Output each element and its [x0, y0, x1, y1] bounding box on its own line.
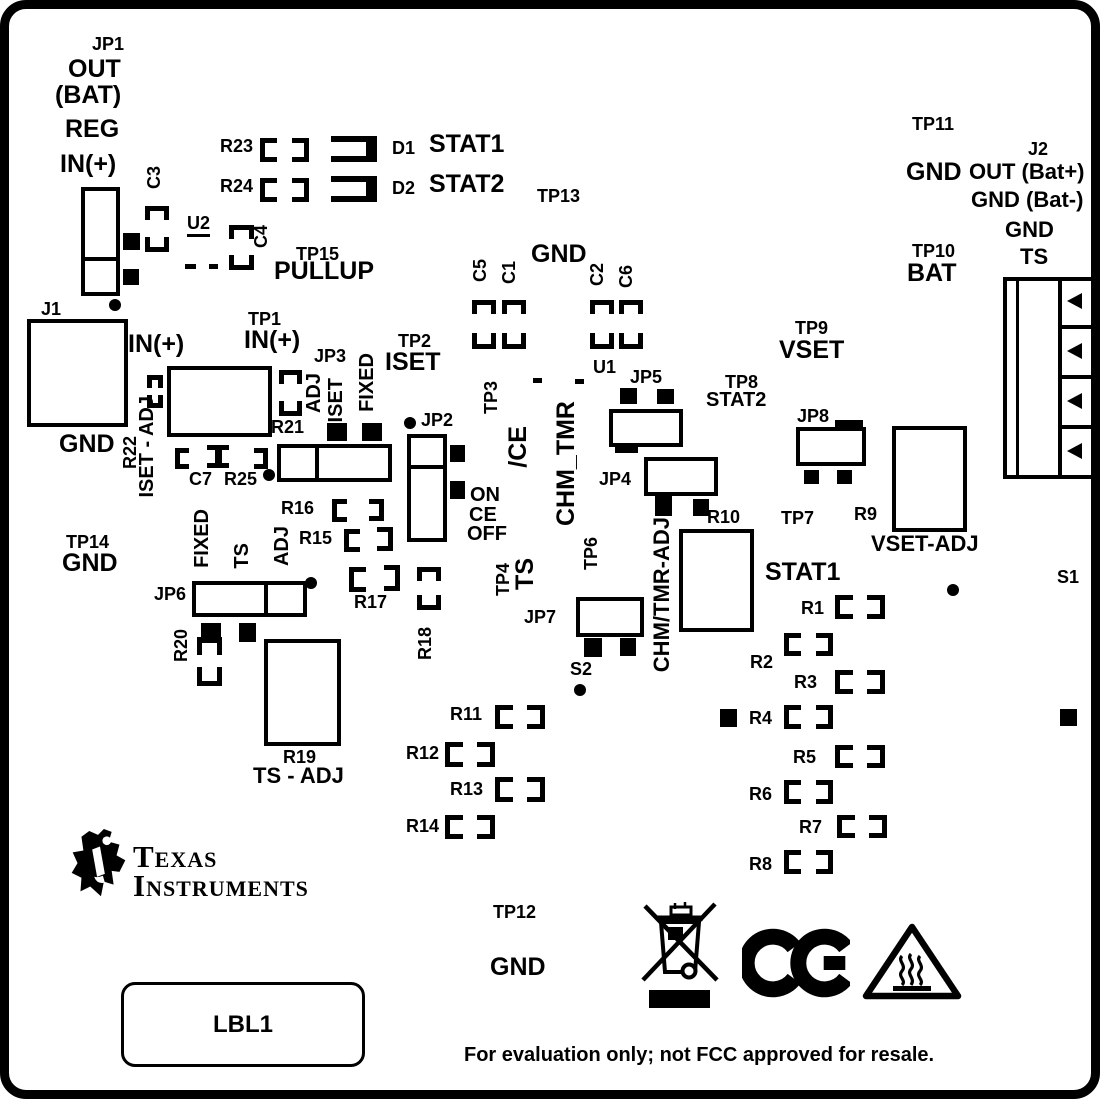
- r2-pad: [816, 633, 833, 656]
- jp7-pad: [584, 638, 602, 657]
- ref-jp8: JP8: [797, 407, 829, 425]
- d2-stat2-label: STAT2: [429, 172, 504, 197]
- r11-pad: [495, 705, 513, 729]
- jp3-fixed-label: FIXED: [357, 353, 377, 412]
- tp2-iset-label: ISET: [385, 350, 441, 375]
- r5-pad: [867, 745, 885, 768]
- ref-tp10: TP10: [912, 242, 955, 260]
- r9-potentiometer: [892, 426, 967, 532]
- ref-tp12: TP12: [493, 903, 536, 921]
- r6-pad: [816, 780, 833, 804]
- tp13-gnd-label: GND: [531, 242, 587, 267]
- ref-tp7: TP7: [781, 509, 814, 527]
- r20-pad: [197, 667, 222, 686]
- jp8-pad: [804, 470, 819, 484]
- r25-dot: [263, 469, 275, 481]
- tp9-vset-label: VSET: [779, 338, 844, 363]
- ref-r20: R20: [172, 629, 190, 662]
- weee-crossed-bin-icon: [637, 900, 723, 986]
- ref-r11: R11: [450, 705, 482, 723]
- hot-surface-warning-icon: [860, 920, 964, 1002]
- r3-pad: [867, 670, 885, 694]
- tp15-pullup-label: PULLUP: [274, 259, 374, 284]
- jp5-pad: [620, 388, 637, 404]
- stat1-label: STAT1: [765, 560, 840, 585]
- jp2-on-label: ON: [470, 485, 500, 505]
- jp1-pad: [123, 269, 139, 285]
- c7-pad: [254, 448, 268, 469]
- c1-pad: [502, 333, 526, 349]
- ref-r10: R10: [707, 508, 740, 526]
- ref-r5: R5: [793, 748, 816, 766]
- c6-pad: [619, 333, 643, 349]
- ref-r7: R7: [799, 818, 822, 836]
- r15-pad: [377, 527, 393, 551]
- chm-tmr-adj-label: CHM/TMR-ADJ: [651, 517, 673, 672]
- ref-r24: R24: [220, 177, 253, 195]
- ref-r14: R14: [406, 817, 439, 835]
- ref-c7: C7: [189, 470, 212, 488]
- ref-c2: C2: [588, 263, 606, 286]
- tp11-gnd-label: GND: [906, 160, 962, 185]
- j1-connector: [27, 319, 128, 427]
- ref-r18: R18: [416, 627, 434, 660]
- jp8-pad: [837, 470, 852, 484]
- c7-pad: [175, 448, 189, 469]
- jp6-divider: [264, 585, 268, 613]
- pcb-silkscreen-board: JP1 OUT (BAT) REG IN(+) C3 U2 C4 TP15 PU…: [0, 0, 1100, 1099]
- vset-adj-label: VSET-ADJ: [871, 533, 979, 555]
- ref-jp6: JP6: [154, 585, 186, 603]
- ref-jp4: JP4: [599, 470, 631, 488]
- iset-adj-label: ISET - ADJ: [137, 396, 157, 498]
- tp10-bat-label: BAT: [907, 261, 957, 286]
- r21-pad: [279, 401, 302, 416]
- ref-jp1: JP1: [92, 35, 124, 53]
- jp4-pad: [655, 496, 672, 516]
- ref-c6: C6: [617, 265, 635, 288]
- j2-pin-arrow-icon: [1067, 443, 1082, 459]
- r14-pad: [477, 815, 495, 839]
- lbl1-text: LBL1: [213, 1011, 273, 1039]
- jp3-jumper: [277, 444, 392, 482]
- j1-in-label: IN(+): [128, 332, 184, 357]
- jp4-jumper: [644, 457, 718, 496]
- c5-pad: [472, 333, 496, 349]
- r17-pad: [384, 565, 400, 591]
- ref-tp6: TP6: [582, 537, 600, 570]
- d1-led-outline: [331, 136, 377, 162]
- j2-divider: [1062, 375, 1095, 379]
- r8-pad: [784, 850, 801, 874]
- c1-pad: [502, 300, 526, 314]
- ce-mark-icon: [742, 923, 850, 1003]
- ref-c3: C3: [145, 166, 163, 189]
- jp6-pin1-dot: [305, 577, 317, 589]
- label-placeholder-box: LBL1: [121, 982, 365, 1067]
- c4-pad: [229, 255, 254, 270]
- jp3-iset-label: ISET: [326, 378, 346, 422]
- ref-r21: R21: [271, 418, 304, 436]
- r12-pad: [477, 742, 495, 767]
- ref-r2: R2: [750, 653, 773, 671]
- r1-pad: [867, 595, 885, 619]
- j2-divider: [1062, 425, 1095, 429]
- ref-r9: R9: [854, 505, 877, 523]
- jp3-divider: [315, 448, 319, 478]
- jp7-pad: [620, 638, 636, 656]
- texas-instruments-logo-icon: [67, 829, 131, 907]
- ref-d2: D2: [392, 179, 415, 197]
- d1-stat1-label: STAT1: [429, 132, 504, 157]
- u2-outline-tick: [209, 264, 218, 269]
- ref-r8: R8: [749, 855, 772, 873]
- jp1-header: [81, 187, 120, 296]
- c2-pad: [590, 300, 614, 314]
- jp6-fixed-label: FIXED: [192, 509, 212, 568]
- ref-r23: R23: [220, 137, 253, 155]
- ref-r1: R1: [801, 599, 824, 617]
- ref-tp3: TP3: [482, 381, 500, 414]
- board-dot: [947, 584, 959, 596]
- ref-tp13: TP13: [537, 187, 580, 205]
- j2-divider: [1016, 281, 1019, 475]
- tp4-ts-label: TS: [513, 558, 538, 590]
- r23-pad: [292, 138, 309, 162]
- ref-jp5: JP5: [630, 368, 662, 386]
- tp12-gnd-label: GND: [490, 955, 546, 980]
- jp2-off-label: OFF: [467, 524, 507, 544]
- jp6-ts-label: TS: [232, 543, 252, 569]
- jp1-pin1-dot: [109, 299, 121, 311]
- ref-s1: S1: [1057, 568, 1079, 586]
- r16-pad: [332, 499, 347, 522]
- j2-pin-arrow-icon: [1067, 343, 1082, 359]
- r6-pad: [784, 780, 801, 804]
- ref-r13: R13: [450, 780, 483, 798]
- u1-outline-tick: [575, 379, 584, 384]
- ref-tp4: TP4: [494, 563, 512, 596]
- r5-pad: [835, 745, 853, 768]
- ref-r12: R12: [406, 744, 439, 762]
- r16-pad: [369, 499, 384, 521]
- ref-d1: D1: [392, 139, 415, 157]
- jp5-jumper: [609, 409, 683, 447]
- u2-outline-tick: [185, 264, 196, 269]
- jp2-pin1-dot: [404, 417, 416, 429]
- r12-pad: [445, 742, 463, 767]
- ref-c4: C4: [252, 225, 270, 248]
- jp6-pad: [239, 623, 256, 642]
- r20-pad: [197, 637, 222, 655]
- r22-pad: [147, 395, 163, 408]
- jp5-pad: [657, 389, 674, 404]
- r21-pad: [279, 370, 302, 384]
- footer-note: For evaluation only; not FCC approved fo…: [464, 1045, 934, 1065]
- input-footprint: [167, 366, 272, 437]
- ref-s2: S2: [570, 660, 592, 678]
- c3-pad: [145, 206, 169, 220]
- r7-pad: [869, 815, 887, 838]
- j2-gnd-label: GND: [1005, 219, 1054, 241]
- tp1-in-label: IN(+): [244, 328, 300, 353]
- jp1-divider: [85, 257, 116, 261]
- r18-pad: [417, 567, 441, 581]
- ref-r16: R16: [281, 499, 314, 517]
- jp5-pad: [615, 446, 638, 453]
- r17-pad: [349, 567, 366, 592]
- ref-jp2: JP2: [421, 411, 453, 429]
- ref-tp9: TP9: [795, 319, 828, 337]
- ref-u1: U1: [593, 358, 616, 376]
- ce-bar-label: /CE: [506, 426, 531, 468]
- r15-pad: [344, 529, 360, 552]
- ref-jp7: JP7: [524, 608, 556, 626]
- r18-pad: [417, 595, 441, 610]
- r4-pad: [816, 705, 833, 729]
- jp1-out-label: OUT: [68, 57, 121, 82]
- jp3-adj-label: ADJ: [304, 373, 324, 413]
- u1-outline-tick: [533, 378, 542, 383]
- c7-body: [215, 445, 222, 468]
- ref-tp11: TP11: [912, 115, 954, 133]
- jp2-pad: [450, 445, 465, 462]
- r4-pad: [784, 705, 801, 729]
- r11-pad: [527, 705, 545, 729]
- ref-u2: U2: [187, 214, 210, 237]
- jp1-reg-label: REG: [65, 117, 119, 142]
- ref-j2: J2: [1028, 140, 1048, 158]
- weee-bar: [649, 990, 710, 1008]
- j2-divider: [1062, 325, 1095, 329]
- r4-pad: [720, 709, 737, 727]
- ref-r3: R3: [794, 673, 817, 691]
- chm-tmr-label: CHM_TMR: [554, 401, 579, 526]
- r23-pad: [260, 138, 277, 162]
- jp3-pad: [327, 423, 347, 441]
- jp6-jumper: [192, 581, 307, 617]
- ref-r25: R25: [224, 470, 257, 488]
- ref-r17: R17: [354, 593, 387, 611]
- j2-pin-arrow-icon: [1067, 393, 1082, 409]
- ref-r4: R4: [749, 709, 772, 727]
- jp8-jumper: [796, 427, 866, 466]
- jp8-pad: [835, 420, 863, 427]
- r24-pad: [292, 178, 309, 202]
- r8-pad: [816, 850, 833, 874]
- jp2-pad: [450, 481, 465, 499]
- ref-j1: J1: [41, 300, 61, 318]
- j2-pin-arrow-icon: [1067, 293, 1082, 309]
- jp2-divider: [411, 465, 443, 469]
- tp14-gnd-label: GND: [62, 551, 118, 576]
- r1-pad: [835, 595, 853, 619]
- ref-r6: R6: [749, 785, 772, 803]
- jp1-pad: [123, 233, 140, 250]
- ref-c1: C1: [500, 261, 518, 284]
- r24-pad: [260, 178, 277, 202]
- j1-gnd-label: GND: [59, 432, 115, 457]
- ref-r15: R15: [299, 529, 332, 547]
- s2-dot: [574, 684, 586, 696]
- r7-pad: [837, 815, 855, 838]
- d2-led-outline: [331, 176, 377, 202]
- jp2-ce-label: CE: [469, 505, 497, 525]
- c2-pad: [590, 333, 614, 349]
- ref-jp3: JP3: [314, 347, 346, 365]
- r10-potentiometer: [679, 529, 754, 632]
- r13-pad: [495, 777, 513, 802]
- j2-out-bat-label: OUT (Bat+): [969, 161, 1085, 183]
- jp1-bat-label: (BAT): [55, 83, 121, 108]
- r19-potentiometer: [264, 639, 341, 746]
- r13-pad: [527, 777, 545, 802]
- logo-instruments-text: Instruments: [133, 870, 309, 901]
- tp8-stat2-label: STAT2: [706, 390, 766, 410]
- jp7-jumper: [576, 597, 644, 637]
- r2-pad: [784, 633, 801, 656]
- r3-pad: [835, 670, 853, 694]
- jp6-adj-label: ADJ: [272, 526, 292, 566]
- mount-pad: [1060, 709, 1077, 726]
- jp3-pad: [362, 423, 382, 441]
- c5-pad: [472, 300, 496, 314]
- c3-pad: [145, 237, 169, 252]
- ref-c5: C5: [471, 259, 489, 282]
- j2-gnd-bat-label: GND (Bat-): [971, 189, 1083, 211]
- ts-adj-label: TS - ADJ: [253, 765, 344, 787]
- jp1-in-label: IN(+): [60, 152, 116, 177]
- j2-ts-label: TS: [1020, 246, 1048, 268]
- c6-pad: [619, 300, 643, 314]
- jp2-jumper: [407, 434, 447, 542]
- r14-pad: [445, 815, 463, 839]
- r22-pad: [147, 375, 163, 388]
